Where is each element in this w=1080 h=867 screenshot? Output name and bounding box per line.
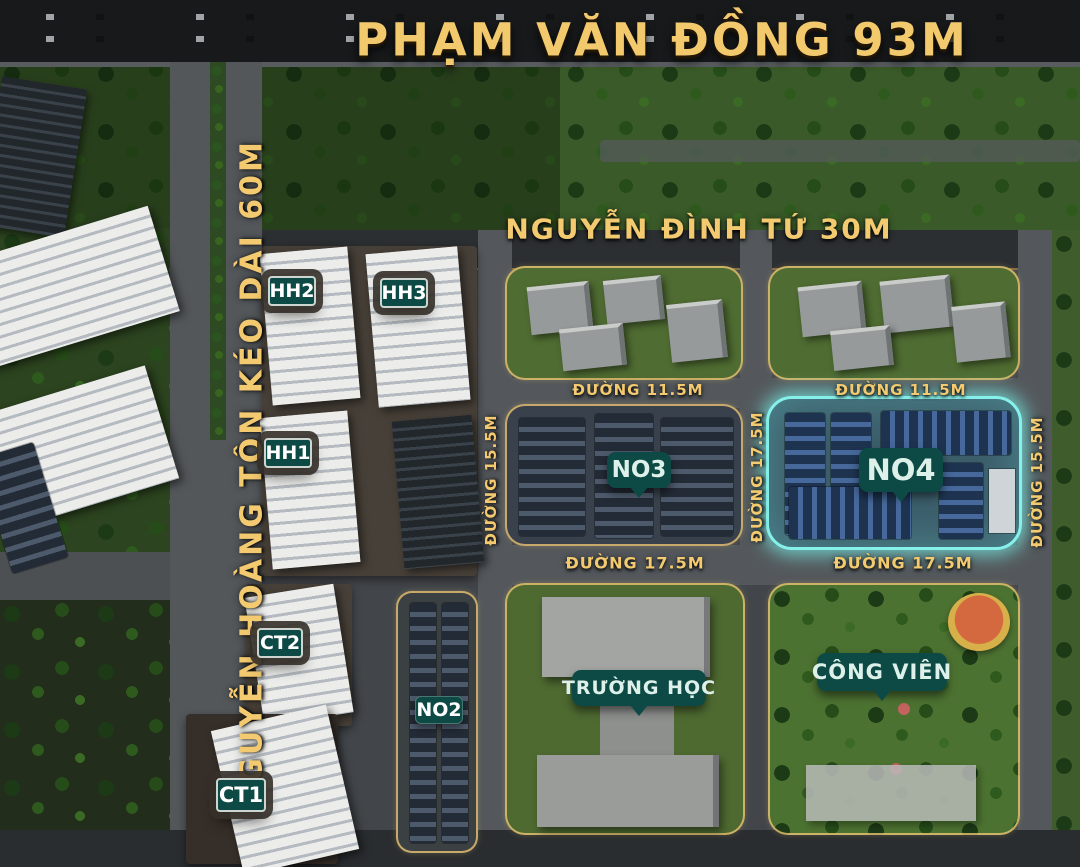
- building: [559, 323, 627, 371]
- road-label-11-5-left: ĐƯỜNG 11.5M: [572, 381, 703, 399]
- road-label-17-5-right: ĐƯỜNG 17.5M: [833, 554, 972, 573]
- tower-hh1: [260, 410, 361, 569]
- building: [951, 301, 1011, 362]
- label-hh1[interactable]: HH1: [264, 438, 312, 468]
- label-no4[interactable]: NO4: [859, 448, 943, 492]
- school-building-north: [542, 597, 710, 677]
- road-label-15-5-left: ĐƯỜNG 15.5M: [482, 414, 500, 545]
- road-label-15-5-right: ĐƯỜNG 15.5M: [1028, 416, 1046, 547]
- street-label-pham-van-dong: PHẠM VĂN ĐỒNG 93M: [355, 14, 969, 67]
- school-building-south: [537, 755, 719, 827]
- label-ct2[interactable]: CT2: [257, 628, 303, 658]
- building: [603, 275, 665, 325]
- parcel-upper-east: [768, 266, 1020, 380]
- lawn-east-edge: [1052, 230, 1080, 830]
- road-median-trees: [210, 62, 226, 440]
- label-hh3[interactable]: HH3: [380, 278, 428, 308]
- street-label-nguyen-dinh-tu: NGUYỄN ĐÌNH TỨ 30M: [505, 213, 892, 246]
- tower-hh3: [365, 246, 470, 407]
- tower-hh2: [260, 246, 361, 405]
- park-band-top-shade: [0, 60, 560, 238]
- label-no2[interactable]: NO2: [415, 696, 463, 724]
- building: [830, 325, 894, 371]
- park-playground: [948, 593, 1010, 651]
- street-label-nguyen-hoang-ton: NGUYỄN HOÀNG TÔN KÉO DÀI 60M: [235, 139, 270, 811]
- label-school[interactable]: TRƯỜNG HỌC: [572, 670, 706, 706]
- road-label-17-5-left: ĐƯỜNG 17.5M: [565, 554, 704, 573]
- building: [879, 274, 954, 333]
- building: [666, 299, 728, 363]
- masterplan-map: PHẠM VĂN ĐỒNG 93M NGUYỄN ĐÌNH TỨ 30M NGU…: [0, 0, 1080, 867]
- parking-strip: [600, 140, 1080, 162]
- label-ct1[interactable]: CT1: [216, 778, 266, 812]
- rowhouses: [661, 418, 733, 536]
- rowhouses: [939, 463, 983, 539]
- road-label-17-5-vertical: ĐƯỜNG 17.5M: [748, 411, 766, 542]
- rowhouses: [519, 418, 585, 536]
- road-bottom: [0, 830, 1080, 867]
- park-pavilion: [806, 765, 976, 821]
- building: [989, 469, 1015, 533]
- parcel-school: [505, 583, 745, 835]
- lawn-west-lower: [0, 600, 170, 830]
- park-flowerbed: [898, 703, 910, 715]
- parcel-park: [768, 583, 1020, 835]
- road-label-11-5-right: ĐƯỜNG 11.5M: [835, 381, 966, 399]
- tower-courtyard: [392, 415, 485, 569]
- label-no3[interactable]: NO3: [607, 452, 671, 488]
- label-park[interactable]: CÔNG VIÊN: [817, 653, 947, 691]
- parcel-upper-west: [505, 266, 743, 380]
- label-hh2[interactable]: HH2: [268, 276, 316, 306]
